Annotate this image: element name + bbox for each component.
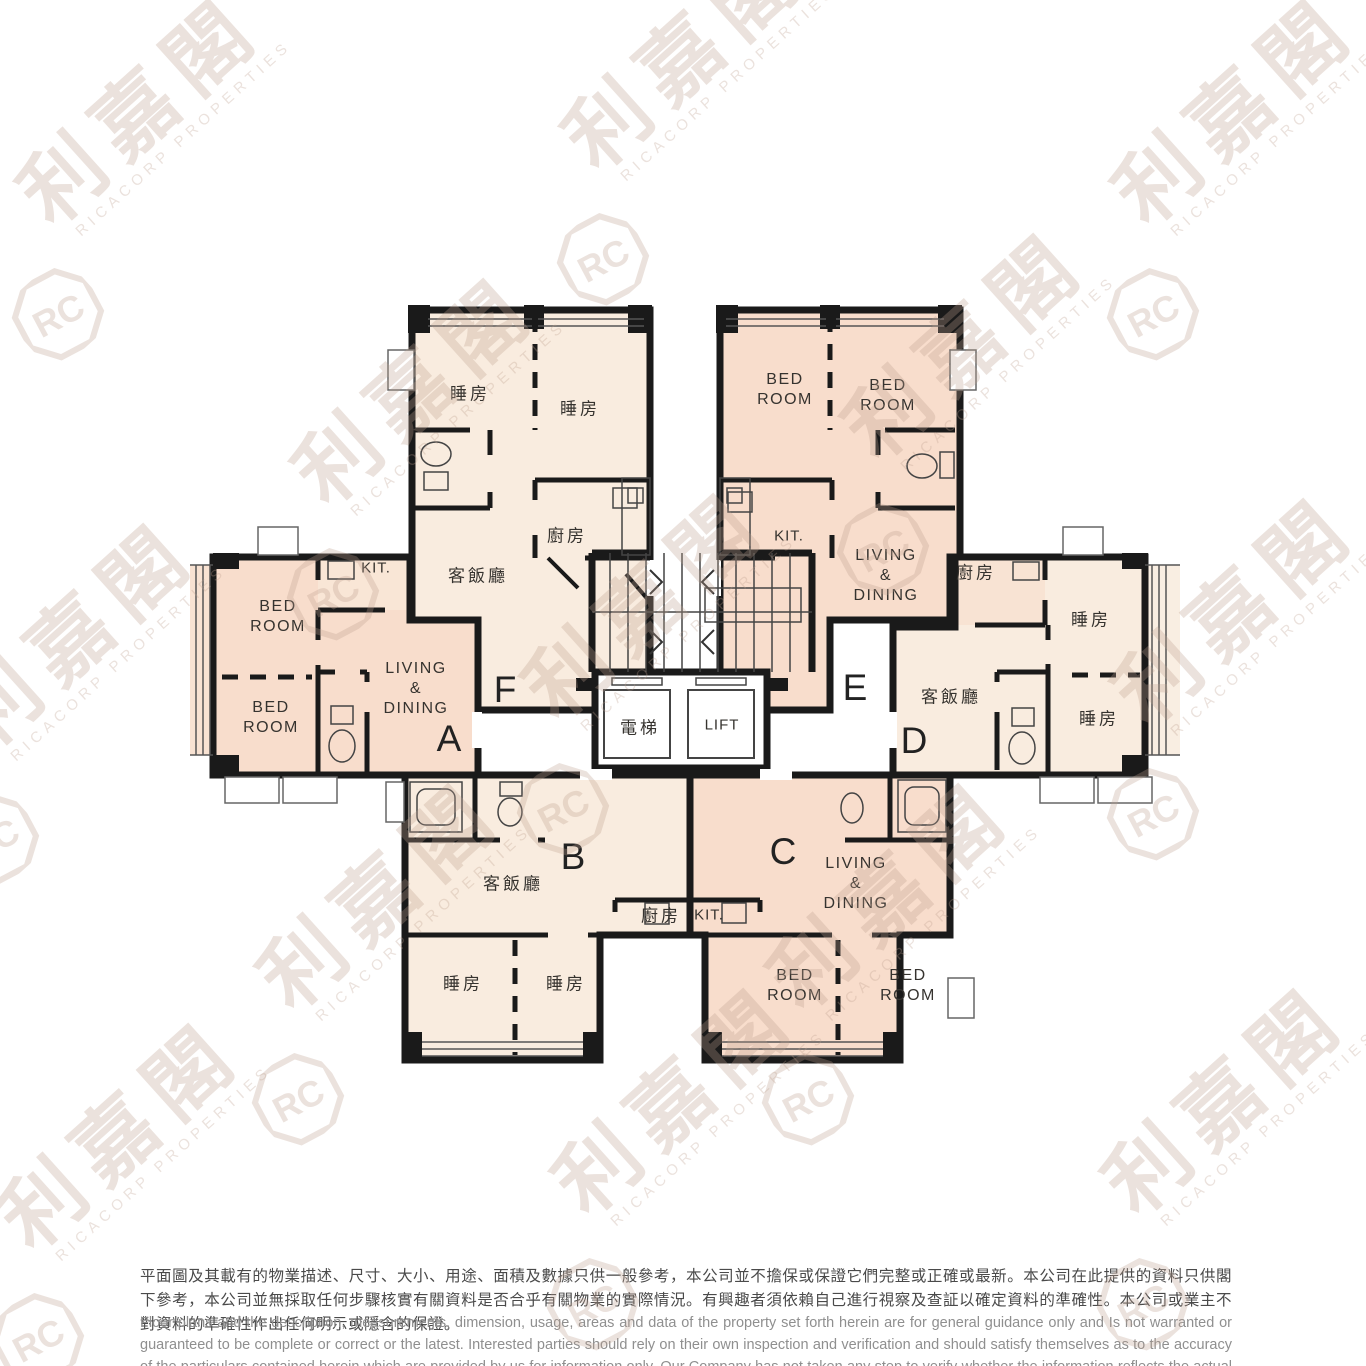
unit-letter-b: B xyxy=(561,834,586,880)
room-label-a-living: LIVING & DINING xyxy=(384,659,449,719)
room-label-b-living: 客飯廳 xyxy=(483,873,543,894)
disclaimer-english: Floor plans and the description, measure… xyxy=(140,1312,1232,1366)
floorplan-page: 睡房 睡房 廚房 客飯廳 F BED ROOM BED ROOM KIT. LI… xyxy=(0,0,1366,1366)
room-label-e-living: LIVING & DINING xyxy=(854,546,919,606)
room-label-d-living: 客飯廳 xyxy=(921,686,981,707)
room-label-f-kitchen: 廚房 xyxy=(547,525,587,546)
room-label-f-bedroom-1: 睡房 xyxy=(450,383,490,404)
room-label-c-bedroom-1: BED ROOM xyxy=(767,966,823,1006)
unit-letter-e: E xyxy=(843,665,868,711)
room-label-b-kitchen: 廚房 xyxy=(641,905,681,926)
floorplan-drawing xyxy=(0,0,1366,1366)
room-label-c-living: LIVING & DINING xyxy=(824,854,889,914)
room-label-f-bedroom-2: 睡房 xyxy=(560,398,600,419)
room-label-b-bedroom-1: 睡房 xyxy=(443,973,483,994)
room-label-e-bedroom-1: BED ROOM xyxy=(757,370,813,410)
room-label-d-kitchen: 廚房 xyxy=(956,562,996,583)
room-label-c-bedroom-2: BED ROOM xyxy=(880,966,936,1006)
lift-label-zh: 電梯 xyxy=(620,717,660,738)
room-label-f-living: 客飯廳 xyxy=(448,565,508,586)
room-label-a-bedroom-2: BED ROOM xyxy=(243,698,299,738)
room-label-a-bedroom-1: BED ROOM xyxy=(250,597,306,637)
unit-letter-c: C xyxy=(770,829,797,875)
room-label-b-bedroom-2: 睡房 xyxy=(546,973,586,994)
unit-letter-d: D xyxy=(901,718,928,764)
room-label-c-kitchen: KIT. xyxy=(694,907,724,926)
unit-letter-a: A xyxy=(437,716,462,762)
room-label-a-kitchen: KIT. xyxy=(361,560,391,579)
room-label-d-bedroom-2: 睡房 xyxy=(1079,708,1119,729)
room-label-d-bedroom-1: 睡房 xyxy=(1071,609,1111,630)
room-label-e-bedroom-2: BED ROOM xyxy=(860,376,916,416)
unit-letter-f: F xyxy=(494,667,517,713)
lift-label-en: LIFT xyxy=(705,717,740,736)
room-label-e-kitchen: KIT. xyxy=(774,528,804,547)
